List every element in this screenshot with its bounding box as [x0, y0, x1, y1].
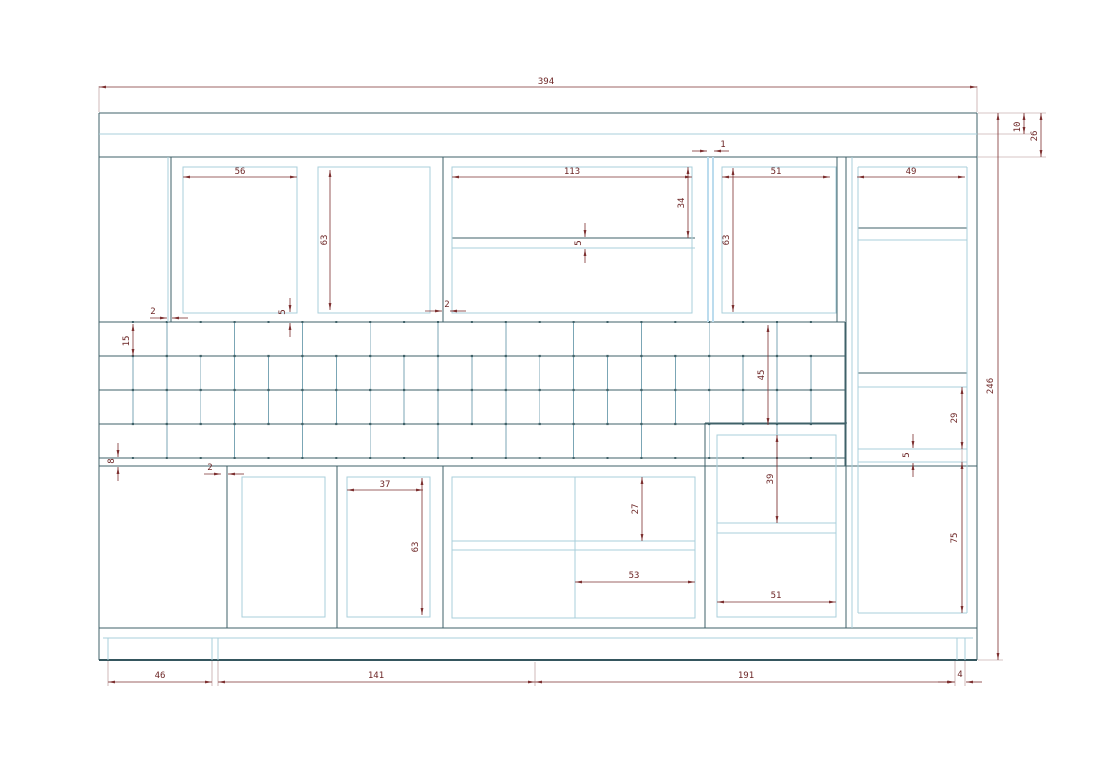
dim-right-total-height: 246 — [986, 378, 996, 394]
dim-plinth-end: 4 — [957, 670, 962, 680]
dim-lower-box4-width: 51 — [771, 591, 782, 601]
dim-plinth-mid: 141 — [368, 671, 384, 681]
dim-lower-box2-width: 37 — [380, 480, 391, 490]
dim-tall-cab-width: 49 — [906, 167, 917, 177]
dim-grid-base-gap: 8 — [107, 458, 117, 463]
dim-upper-box4-height: 63 — [722, 235, 732, 246]
dim-lower-box3-drawer: 27 — [631, 504, 641, 515]
dim-tall-shelf-gap: 29 — [950, 413, 960, 424]
dim-upper-box1-width: 56 — [235, 167, 246, 177]
dim-upper-box2-height: 63 — [320, 235, 330, 246]
dim-lower-stile-gap: 2 — [207, 463, 212, 473]
center-stile-pale-lines — [708, 157, 713, 322]
dim-center-panel-gap: 1 — [720, 140, 725, 150]
dim-upper-box3-width: 113 — [564, 167, 580, 177]
dim-lower-box2-height: 63 — [411, 542, 421, 553]
dim-upper-box3-gap: 2 — [444, 300, 449, 310]
dim-upper-box3-shelf: 5 — [574, 240, 584, 245]
drawer-grid — [132, 321, 812, 459]
dim-cornice-total: 26 — [1030, 131, 1040, 142]
dim-upper-stile-gap: 2 — [150, 307, 155, 317]
dim-lower-box3-width: 53 — [629, 571, 640, 581]
cabinet-elevation-drawing: 394 246 10 26 56 2 63 5 113 34 5 2 1 51 … — [0, 0, 1099, 772]
dim-cornice-height: 10 — [1013, 122, 1023, 133]
dim-lower-box4-drawer: 39 — [766, 474, 776, 485]
dim-tall-lower-height: 75 — [950, 533, 960, 544]
dim-plinth-right: 191 — [738, 671, 754, 681]
dim-plinth-left: 46 — [155, 671, 166, 681]
dim-upper-box3-drop: 34 — [677, 198, 687, 209]
cad-drawing-canvas: 394 246 10 26 56 2 63 5 113 34 5 2 1 51 … — [0, 0, 1099, 772]
dim-upper-box4-width: 51 — [771, 167, 782, 177]
dim-grid-row-height: 15 — [122, 336, 132, 347]
dim-upper-box2-gap: 5 — [278, 309, 288, 314]
dim-tall-shelf-thickness: 5 — [902, 452, 912, 457]
dim-top-width: 394 — [538, 77, 554, 87]
structure-dark-lines — [99, 113, 977, 660]
dim-grid-height: 45 — [757, 370, 767, 381]
